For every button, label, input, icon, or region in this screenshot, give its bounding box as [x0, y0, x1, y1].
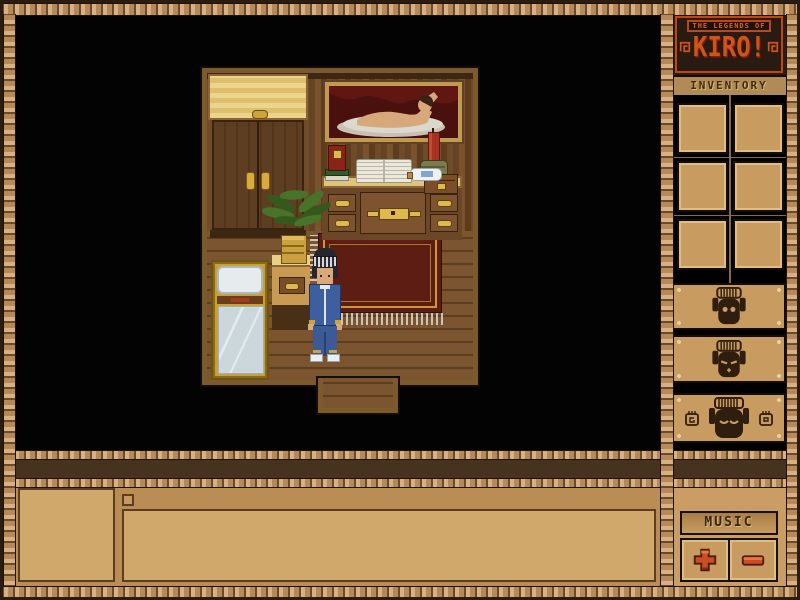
- music-header: MUSIC: [680, 511, 778, 535]
- rope-border: [672, 478, 786, 488]
- bottom-dark-strip: [14, 458, 660, 480]
- volume-down-button[interactable]: [730, 540, 776, 580]
- inventory-slot[interactable]: [677, 103, 728, 154]
- portrait-box: [18, 488, 115, 582]
- game-logo: THE LEGENDS OF KIRO!: [675, 16, 783, 73]
- drawer: [430, 194, 458, 212]
- game-viewport[interactable]: [14, 14, 660, 450]
- game-window: THE LEGENDS OF KIRO! INVENTORY: [0, 0, 800, 600]
- tiki-mask-round-eyes-icon: [707, 286, 751, 327]
- open-book[interactable]: [356, 159, 412, 183]
- spiral-icon: [679, 41, 691, 53]
- shoe: [327, 354, 340, 362]
- shoe: [310, 354, 323, 362]
- pants: [313, 326, 337, 354]
- mini-mask-card-icon: [759, 410, 773, 427]
- volume-up-button[interactable]: [682, 540, 728, 580]
- book-red: [328, 145, 346, 171]
- doorway[interactable]: [318, 378, 398, 413]
- message-text-area[interactable]: [122, 509, 656, 582]
- frame-rope-top: [3, 3, 797, 16]
- frame-rope-left: [3, 14, 16, 586]
- drawer-center: [360, 192, 426, 234]
- inventory-slot[interactable]: [677, 219, 728, 270]
- mask-button-1[interactable]: [672, 283, 786, 330]
- rope-border: [672, 450, 786, 460]
- framed-nude-painting[interactable]: [325, 82, 462, 142]
- empty-square-icon[interactable]: [122, 494, 134, 506]
- tiki-mask-wide-icon: [705, 396, 753, 440]
- mask-button-2[interactable]: [672, 335, 786, 383]
- logo-title: KIRO!: [693, 31, 765, 63]
- plant-pot: [281, 235, 307, 264]
- music-volume-controls: [680, 538, 778, 582]
- bed-sheet: [218, 306, 264, 374]
- nightstand-drawer: [279, 277, 305, 294]
- rope-border: [14, 450, 660, 460]
- wardrobe-door-split: [257, 122, 259, 228]
- message-bar: [14, 486, 660, 586]
- tiki-mask-slant-eyes-icon: [707, 339, 751, 380]
- mask-button-3[interactable]: [672, 393, 786, 443]
- bed-pillow: [217, 266, 263, 294]
- inventory-slot[interactable]: [677, 161, 728, 212]
- music-panel: MUSIC: [672, 486, 786, 587]
- player-character[interactable]: [307, 248, 343, 362]
- sidebar-divider-rope: [660, 14, 674, 586]
- frame-rope-right: [786, 14, 799, 586]
- nightstand[interactable]: [272, 255, 310, 330]
- bottle: [410, 168, 442, 181]
- inventory-grid: [672, 95, 786, 283]
- plus-icon: [691, 546, 719, 574]
- inventory-slot[interactable]: [733, 219, 784, 270]
- desk[interactable]: [322, 176, 462, 240]
- logo-panel: THE LEGENDS OF KIRO!: [672, 14, 786, 75]
- spiral-icon: [767, 41, 779, 53]
- hanging-plant[interactable]: [260, 190, 332, 240]
- painting-image: [329, 86, 458, 138]
- drawer: [328, 194, 356, 212]
- desk-body: [322, 188, 462, 240]
- inventory-slot[interactable]: [733, 103, 784, 154]
- wardrobe-handle-left: [246, 172, 255, 190]
- minus-icon: [739, 546, 767, 574]
- mini-mask-card-icon: [685, 410, 699, 427]
- room: [202, 68, 478, 385]
- sidebar-dark-strip: [672, 458, 786, 480]
- inventory-slot[interactable]: [733, 161, 784, 212]
- rope-border: [14, 478, 660, 488]
- frame-rope-bottom: [3, 586, 797, 599]
- bed-divider: [217, 296, 263, 304]
- rug-border-inner: [329, 244, 431, 302]
- drawer: [430, 214, 458, 232]
- drawer: [328, 214, 356, 232]
- bed[interactable]: [211, 260, 269, 380]
- wardrobe-top-handle: [252, 110, 268, 119]
- wardrobe-handle-right: [261, 172, 270, 190]
